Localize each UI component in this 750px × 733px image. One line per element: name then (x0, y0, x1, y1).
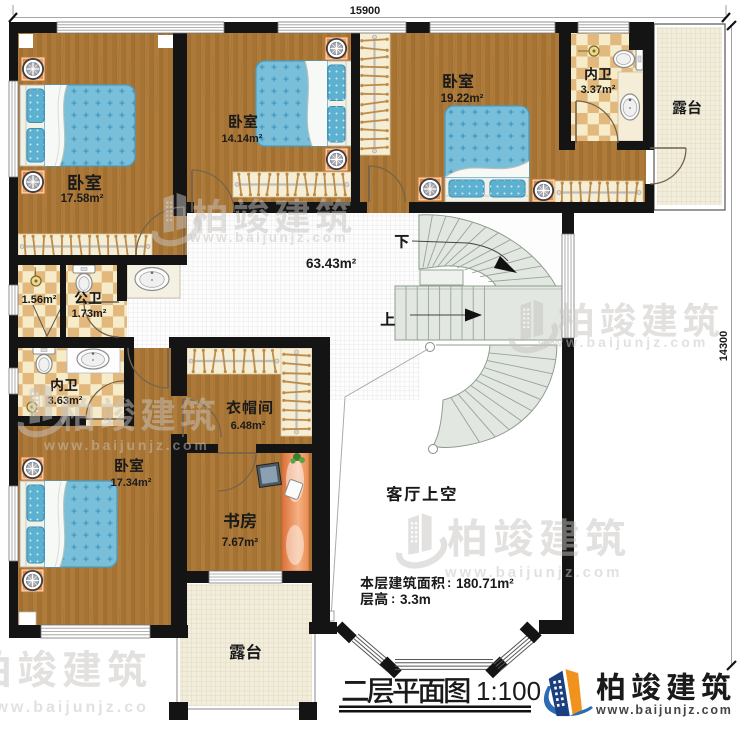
svg-text:14.14m²: 14.14m² (222, 133, 263, 145)
svg-text:7.67m²: 7.67m² (222, 537, 259, 549)
svg-text:www.baijunjz.co: www.baijunjz.co (0, 699, 149, 716)
svg-text:3.37m²: 3.37m² (581, 84, 616, 96)
svg-text:www.baijunjz.com: www.baijunjz.com (43, 437, 210, 453)
svg-text:63.43m²: 63.43m² (306, 256, 357, 271)
svg-text:19.22m²: 19.22m² (441, 93, 484, 105)
svg-text:6.48m²: 6.48m² (231, 420, 266, 432)
svg-text:17.58m²: 17.58m² (61, 193, 104, 205)
svg-text:1.73m²: 1.73m² (72, 308, 107, 320)
svg-text:1.56m²: 1.56m² (22, 294, 57, 306)
svg-text:www.baijunjz.com: www.baijunjz.com (189, 230, 348, 245)
svg-text:www.baijunjz.com: www.baijunjz.com (595, 703, 733, 717)
svg-text:3.3m: 3.3m (400, 592, 431, 607)
svg-text:14300: 14300 (718, 331, 730, 362)
svg-text:17.34m²: 17.34m² (111, 477, 152, 489)
svg-text:15900: 15900 (350, 5, 381, 17)
svg-text:www.baijunjz.com: www.baijunjz.com (444, 564, 622, 581)
svg-text::: : (391, 591, 395, 606)
svg-text:www.baijunjz.com: www.baijunjz.com (537, 334, 708, 350)
svg-text:1:100: 1:100 (476, 676, 541, 706)
